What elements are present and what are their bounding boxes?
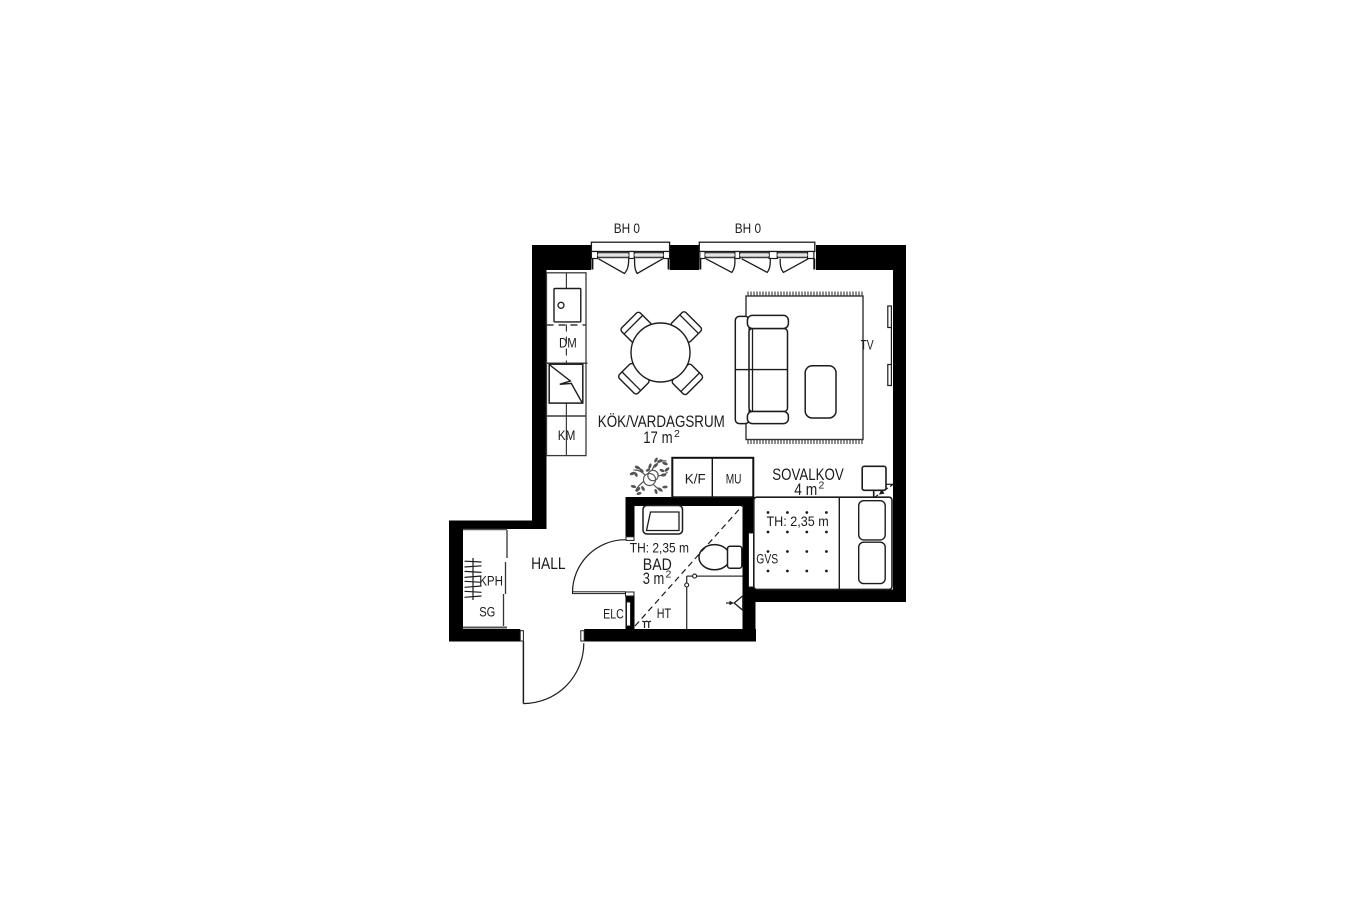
svg-text:2: 2	[666, 569, 672, 581]
svg-text:TH: 2,35 m: TH: 2,35 m	[767, 514, 829, 529]
svg-text:SG: SG	[479, 604, 495, 619]
svg-text:HT: HT	[657, 606, 671, 621]
svg-text:17 m: 17 m	[643, 429, 672, 447]
svg-text:4 m: 4 m	[794, 481, 817, 499]
svg-text:K/F: K/F	[685, 471, 706, 486]
svg-text:HALL: HALL	[531, 555, 566, 573]
svg-text:TH: 2,35 m: TH: 2,35 m	[630, 541, 689, 556]
svg-text:DM: DM	[559, 335, 577, 350]
svg-text:3 m: 3 m	[643, 570, 665, 588]
svg-text:BH 0: BH 0	[614, 221, 640, 236]
svg-text:KPH: KPH	[479, 573, 503, 588]
svg-text:GVS: GVS	[756, 552, 778, 567]
svg-text:KM: KM	[558, 428, 576, 443]
svg-text:2: 2	[674, 428, 680, 440]
svg-text:TV: TV	[861, 338, 874, 353]
svg-text:MU: MU	[726, 471, 742, 486]
svg-text:ELC: ELC	[603, 607, 624, 622]
svg-text:BH 0: BH 0	[735, 221, 761, 236]
svg-text:2: 2	[819, 480, 825, 492]
